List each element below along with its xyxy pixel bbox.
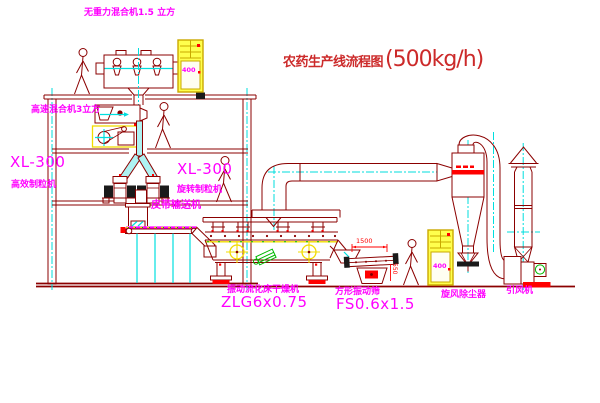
- granulator-mid-name: 旋转制粒机: [177, 186, 222, 195]
- person-figure: [75, 49, 90, 95]
- gravity-mixer-label: 无重力混合机1.5 立方: [84, 9, 175, 18]
- sieve-length-dim: 1500: [356, 238, 373, 245]
- title-chinese: 农药生产线流程图: [283, 51, 383, 70]
- sieve-height-dim: 550: [391, 263, 397, 274]
- cabinet1-text: 400: [182, 67, 196, 74]
- granulator-mid-model: XL-300: [177, 162, 232, 177]
- person-figure: [156, 103, 171, 149]
- belt-conveyor: [121, 227, 217, 284]
- gravity-free-mixer: [96, 48, 189, 112]
- flow-diagram-canvas: 无重力混合机1.5 立方 高速混合机3立方 XL-300 高效制粒机 XL-30…: [0, 0, 600, 403]
- speed-mixer-label: 高速混合机3立方: [31, 106, 100, 115]
- belt-conveyor-label: 皮带输送机: [151, 201, 201, 211]
- dryer-model: ZLG6x0.75: [221, 295, 308, 310]
- discharge-chute: [126, 204, 151, 228]
- square-sieve: [334, 244, 399, 284]
- person-figure: [404, 240, 419, 286]
- dryer-motor: [252, 249, 276, 267]
- drawing-title: 农药生产线流程图 (500kg/h): [283, 47, 483, 72]
- granulator-left-model: XL-300: [10, 155, 65, 170]
- granulator-left-name: 高效制粒机: [11, 181, 56, 190]
- cyclone-label: 旋风除尘器: [441, 291, 486, 300]
- fan-label: 引风机: [506, 287, 533, 296]
- fluid-bed-dryer: [203, 218, 348, 285]
- cabinet2-text: 400: [433, 263, 447, 270]
- small-bin: [196, 93, 205, 100]
- title-capacity: (500kg/h): [385, 47, 483, 72]
- rotary-granulators: [102, 174, 170, 203]
- sieve-model: FS0.6x1.5: [336, 297, 415, 312]
- control-cabinet-2: [428, 230, 453, 285]
